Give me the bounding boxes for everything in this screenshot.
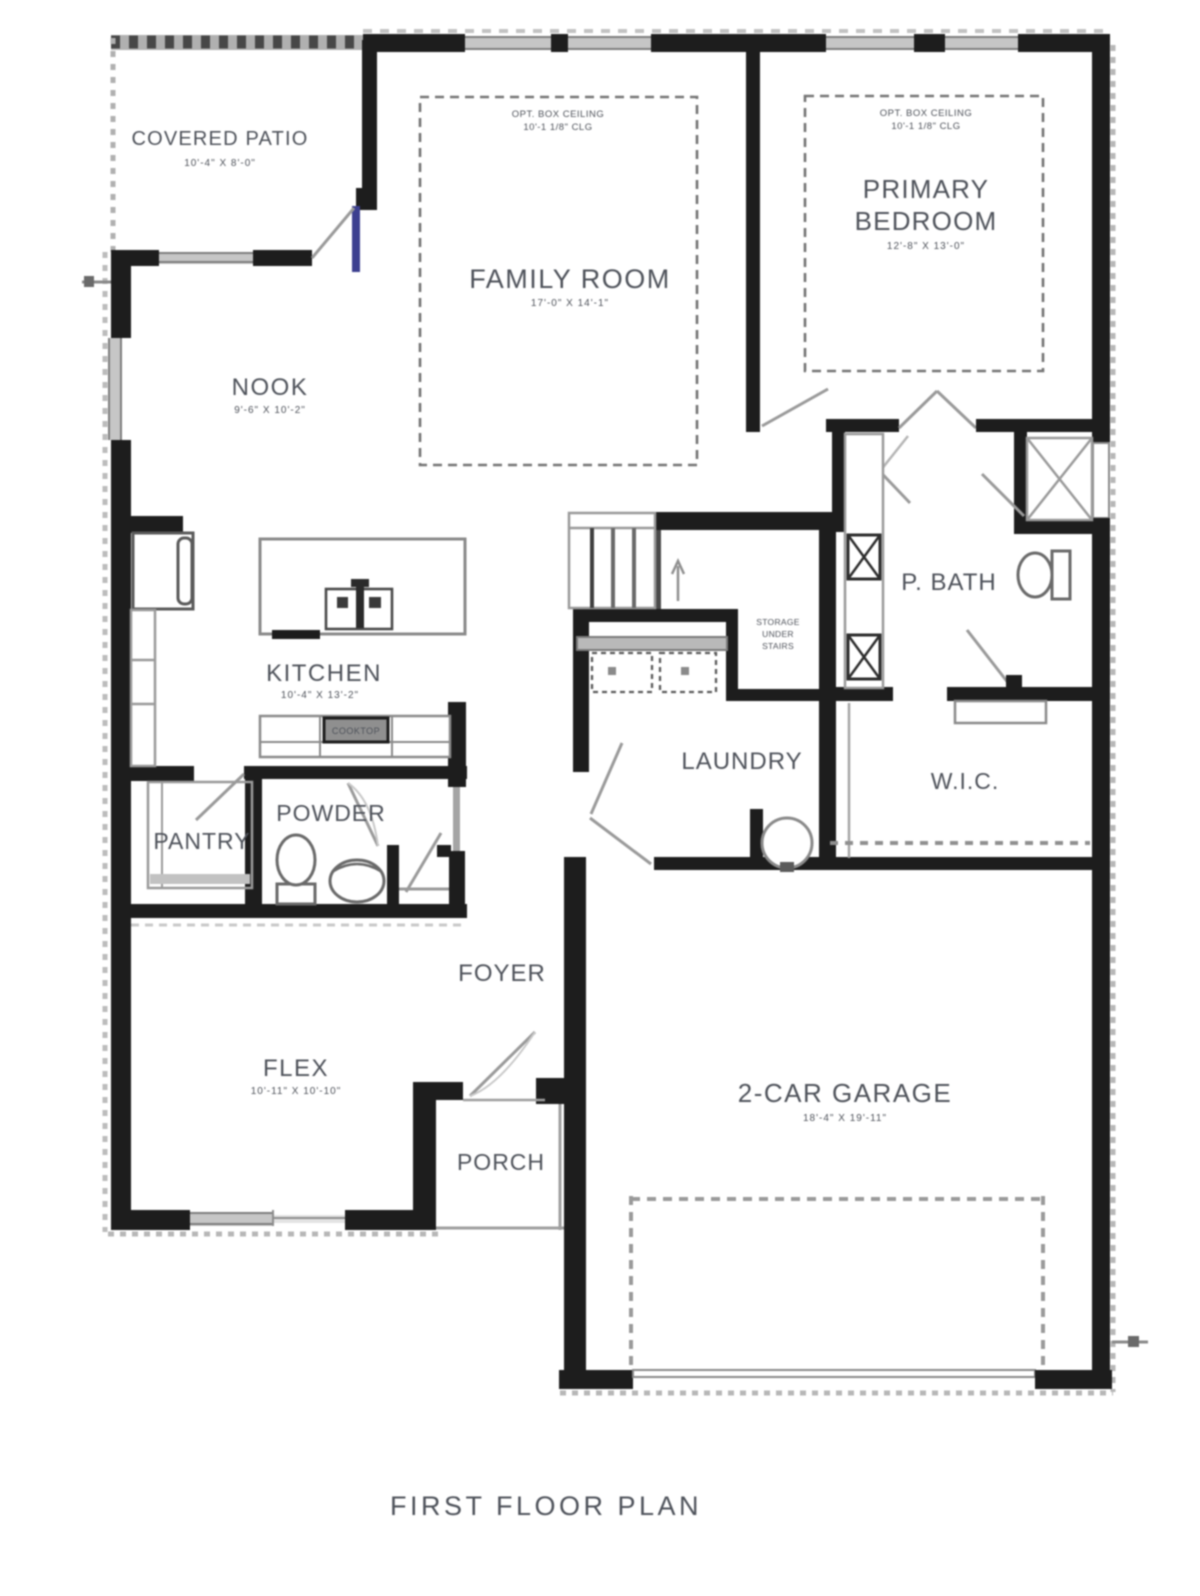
svg-text:12'-8" X 13'-0": 12'-8" X 13'-0"	[887, 241, 965, 252]
svg-text:FLEX: FLEX	[263, 1055, 329, 1082]
svg-text:STORAGE: STORAGE	[756, 617, 800, 627]
svg-text:LAUNDRY: LAUNDRY	[681, 748, 802, 775]
svg-text:9'-6" X 10'-2": 9'-6" X 10'-2"	[234, 405, 306, 416]
svg-text:10'-4" X 8'-0": 10'-4" X 8'-0"	[184, 158, 256, 169]
svg-text:FAMILY ROOM: FAMILY ROOM	[469, 264, 671, 294]
svg-text:PORCH: PORCH	[457, 1149, 545, 1175]
svg-text:POWDER: POWDER	[276, 800, 386, 826]
svg-text:2-CAR GARAGE: 2-CAR GARAGE	[738, 1078, 953, 1108]
svg-text:COOKTOP: COOKTOP	[332, 726, 380, 736]
svg-text:UNDER: UNDER	[762, 629, 794, 639]
svg-text:FOYER: FOYER	[458, 960, 546, 987]
svg-text:NOOK: NOOK	[232, 374, 309, 401]
svg-text:P. BATH: P. BATH	[901, 569, 996, 596]
svg-text:OPT. BOX CEILING: OPT. BOX CEILING	[512, 109, 604, 120]
svg-text:10'-1 1/8" CLG: 10'-1 1/8" CLG	[523, 122, 592, 133]
svg-text:10'-4" X 13'-2": 10'-4" X 13'-2"	[281, 690, 359, 701]
svg-text:PANTRY: PANTRY	[153, 828, 250, 854]
svg-text:COVERED PATIO: COVERED PATIO	[131, 128, 308, 150]
svg-text:STAIRS: STAIRS	[762, 641, 794, 651]
svg-text:FIRST FLOOR PLAN: FIRST FLOOR PLAN	[390, 1491, 702, 1521]
svg-text:18'-4" X 19'-11": 18'-4" X 19'-11"	[803, 1113, 887, 1124]
svg-text:PRIMARY: PRIMARY	[863, 174, 989, 204]
svg-text:10'-1 1/8" CLG: 10'-1 1/8" CLG	[891, 121, 960, 132]
svg-text:17'-0" X 14'-1": 17'-0" X 14'-1"	[531, 298, 609, 309]
svg-text:OPT. BOX CEILING: OPT. BOX CEILING	[880, 108, 972, 119]
svg-text:W.I.C.: W.I.C.	[931, 768, 1000, 794]
svg-text:10'-11" X 10'-10": 10'-11" X 10'-10"	[251, 1086, 342, 1097]
svg-text:KITCHEN: KITCHEN	[266, 660, 382, 687]
svg-text:BEDROOM: BEDROOM	[855, 206, 998, 236]
